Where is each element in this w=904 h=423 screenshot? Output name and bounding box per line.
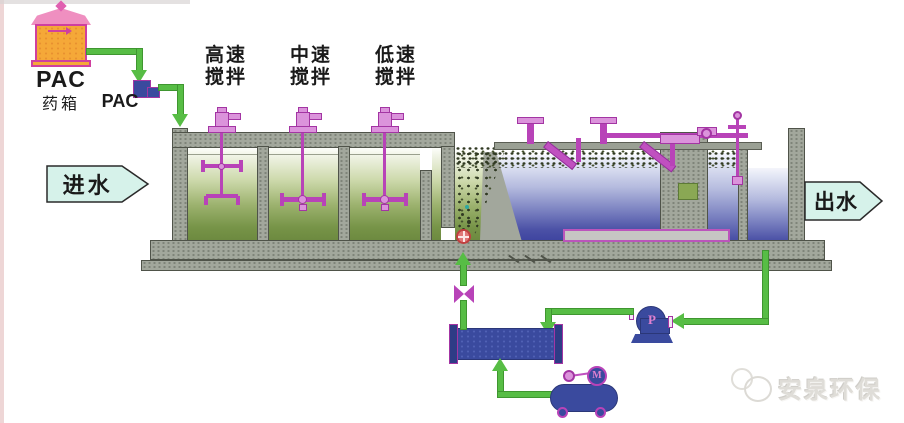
mixer-3-motor-cap <box>380 107 390 113</box>
watermark-logo-icon <box>744 376 772 402</box>
stage-label-medium-speed: 中速 搅拌 <box>279 45 343 89</box>
mixer-1-motor-cap <box>217 107 227 113</box>
downcomer-passage-water <box>432 148 441 240</box>
inlet-arrow: 进水 <box>46 165 150 203</box>
scraper-rail <box>494 142 762 150</box>
level-gauge-handwheel-icon <box>733 111 742 120</box>
mixer-3-base <box>371 126 399 133</box>
release-valve-icon <box>454 285 464 303</box>
riser-pipe-upper <box>460 262 467 286</box>
mixer-2-motor <box>296 112 310 127</box>
air-pipe-arrow-icon <box>492 355 508 371</box>
recycle-discharge-pipe-horizontal <box>550 308 634 315</box>
pac-tank-arrow-icon <box>48 30 66 32</box>
pac-pipe-label: PAC <box>96 91 144 112</box>
saturator-flange-left <box>449 324 458 364</box>
mixer-1-lower-blade <box>204 196 208 205</box>
mixer-3-hub <box>380 195 389 204</box>
mixer-2-cone <box>299 204 307 211</box>
pac-tank-label: PAC <box>28 66 94 93</box>
stage-label-line1: 中速 <box>279 45 343 67</box>
stage-label-line2: 搅拌 <box>279 67 343 89</box>
compressor-motor-label: M <box>589 370 605 381</box>
outlet-label: 出水 <box>804 181 884 221</box>
base-plate <box>141 260 832 271</box>
compressor-wheel-icon <box>595 407 606 418</box>
mixer-1-upper-blade <box>201 160 205 172</box>
mixer-2-motor-cap <box>298 107 308 113</box>
mixer-1-hub <box>218 163 225 170</box>
diffuser-cross-icon <box>458 236 469 238</box>
scan-edge-left <box>0 0 4 423</box>
recycle-pump-base <box>631 334 673 343</box>
dosing-pipe-vertical-1 <box>136 48 143 72</box>
scan-edge-top <box>0 0 190 4</box>
divider-wall-2 <box>338 146 350 242</box>
mixer-1-lower-impeller <box>206 194 238 198</box>
watermark-text: 安泉环保 <box>778 370 888 405</box>
mixer-2-motor-arm <box>309 113 322 120</box>
mixer-2-hub <box>298 195 307 204</box>
mixer-1-upper-blade <box>239 160 243 172</box>
bubble-dot <box>465 205 469 209</box>
dosing-pipe-vertical-2 <box>177 84 184 116</box>
chamber-divider-wall <box>738 147 748 250</box>
diagram-canvas: P M 进水 出水 PAC 药箱 PAC 高速 搅拌 <box>0 0 904 423</box>
pac-tank-arrow-head-icon <box>66 27 75 35</box>
mixer-3-cone <box>381 204 389 211</box>
mixer-3-blade <box>362 193 366 206</box>
recycle-suction-pipe-vertical <box>762 250 769 325</box>
compressor-pulley-icon <box>563 370 575 382</box>
mixer-1-lower-blade <box>236 196 240 205</box>
stage-label-low-speed: 低速 搅拌 <box>364 45 428 89</box>
weir-wall <box>420 170 432 242</box>
scraper-post-cap <box>590 117 617 124</box>
divider-wall-1 <box>257 146 269 242</box>
riser-arrow-icon <box>455 249 471 265</box>
scraper-motor-wheel-icon <box>701 128 712 139</box>
transfer-window <box>678 183 698 200</box>
submerged-collector-pipe <box>563 229 730 242</box>
mixer-2-blade <box>322 193 326 206</box>
level-gauge-float <box>732 176 743 185</box>
mixer-2-shaft <box>301 132 304 202</box>
compressor-wheel-icon <box>557 407 568 418</box>
recycle-suction-pipe-horizontal <box>680 318 769 325</box>
mixer-1-motor <box>215 112 229 127</box>
level-gauge-crossbar <box>728 125 746 129</box>
bubble-dot <box>461 213 464 216</box>
stage-label-line1: 高速 <box>194 45 258 67</box>
mixer-3-shaft <box>383 132 386 202</box>
outlet-chamber-2-water <box>748 168 788 250</box>
hanging-baffle <box>441 146 455 228</box>
bubble-dot <box>467 220 471 224</box>
release-valve-icon <box>464 285 474 303</box>
mixer-3-motor-arm <box>391 113 404 120</box>
tank-top-slab <box>172 132 455 148</box>
outer-right-wall <box>788 128 805 255</box>
recycle-pump-label: P <box>644 312 660 328</box>
mixer-2-blade <box>280 193 284 206</box>
scraper-post <box>527 122 534 144</box>
air-pipe-horizontal <box>497 391 552 398</box>
stage-label-line2: 搅拌 <box>364 67 428 89</box>
scraper-post-cap <box>517 117 544 124</box>
mixer-3-blade <box>404 193 408 206</box>
scraper-motor <box>660 134 700 144</box>
stage-label-line1: 低速 <box>364 45 428 67</box>
scraper-post <box>600 122 607 144</box>
mixer-1-motor-arm <box>228 113 241 120</box>
outlet-arrow: 出水 <box>804 181 884 221</box>
riser-pipe-lower <box>460 300 467 330</box>
recycle-pump-flange-icon <box>668 316 673 328</box>
saturator-flange-right <box>554 324 563 364</box>
mixer-2-base <box>289 126 317 133</box>
pac-tank-sublabel: 药箱 <box>28 90 94 114</box>
dosing-pipe-arrow-icon <box>172 114 188 130</box>
dosing-pipe-horizontal-1 <box>86 48 143 55</box>
floor-slab <box>150 240 825 260</box>
mixer-3-motor <box>378 112 392 127</box>
stage-label-high-speed: 高速 搅拌 <box>194 45 258 89</box>
stage-label-line2: 搅拌 <box>194 67 258 89</box>
scraper-blade-hanger <box>576 138 581 162</box>
inlet-label: 进水 <box>46 165 150 203</box>
mixer-1-base <box>208 126 236 133</box>
